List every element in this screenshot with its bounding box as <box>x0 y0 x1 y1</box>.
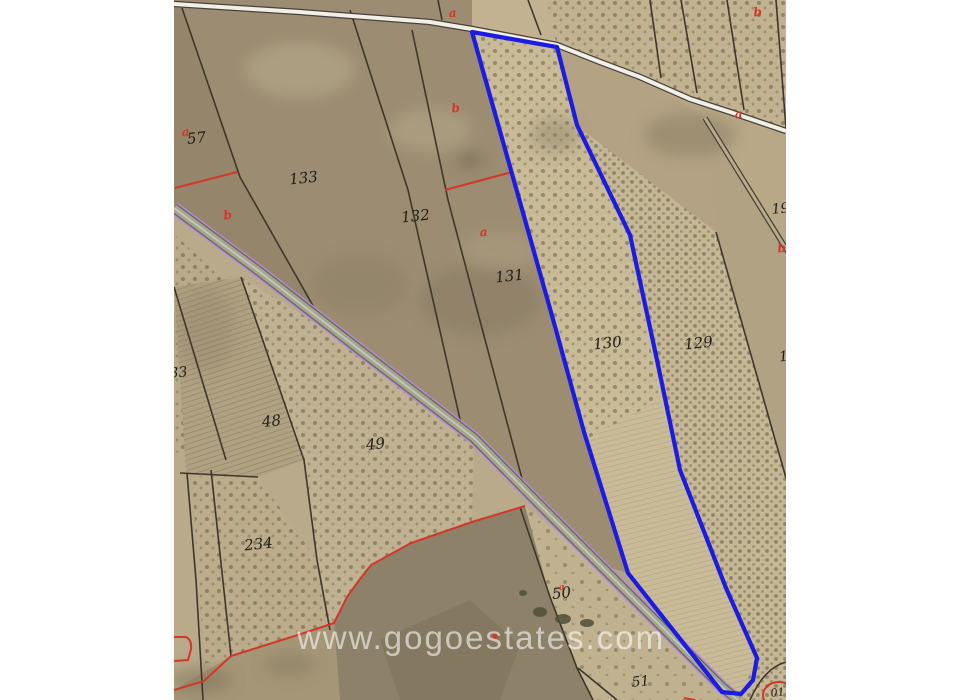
boundary-marker-b: b <box>777 241 787 256</box>
parcel-label-49: 49 <box>364 434 386 454</box>
boundary-marker-b: b <box>753 5 763 20</box>
boundary-marker-a: a <box>558 583 565 594</box>
parcel-label-51: 51 <box>631 673 650 691</box>
boundary-marker-b: b <box>451 101 461 116</box>
map-viewport[interactable]: 57133132131130129191334849234505101 abab… <box>0 0 960 700</box>
parcel-label-130: 130 <box>592 333 623 354</box>
cadastral-map[interactable]: 57133132131130129191334849234505101 abab… <box>0 0 960 700</box>
boundary-marker-a: a <box>448 6 457 21</box>
parcel-label-133: 133 <box>288 168 318 189</box>
parcel-label-129: 129 <box>683 333 714 354</box>
boundary-marker-a: a <box>479 225 488 240</box>
watermark: www.gogoestates.com <box>296 619 665 656</box>
boundary-marker-a: a <box>181 125 190 140</box>
boundary-marker-a: a <box>734 107 743 122</box>
parcel-label-131: 131 <box>494 266 524 287</box>
parcel-label-01: 01 <box>770 685 785 699</box>
parcel-label-48: 48 <box>260 411 282 431</box>
boundary-marker-b: b <box>223 208 233 223</box>
parcel-label-132: 132 <box>400 206 430 227</box>
parcel-label-234: 234 <box>242 534 273 555</box>
